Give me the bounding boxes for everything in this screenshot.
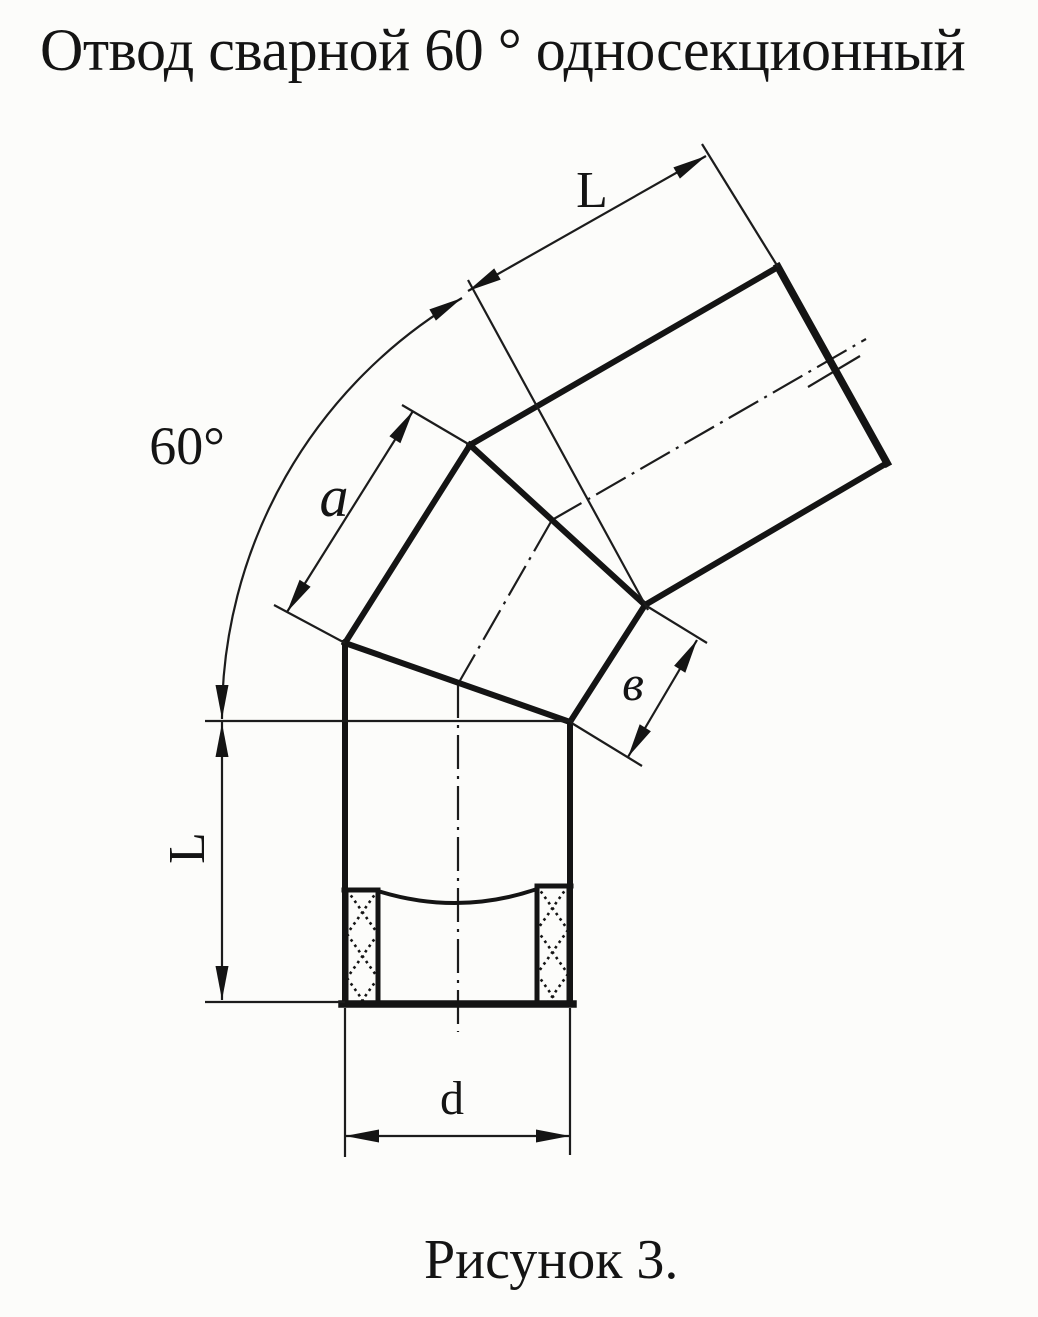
dim-gore-outer-a: a <box>274 405 470 643</box>
arrowhead-a-upper <box>389 411 413 443</box>
arrowhead-L-left-top <box>216 723 229 757</box>
label-L-top: L <box>576 162 608 219</box>
dim-diameter-d: d <box>345 1008 570 1157</box>
scanned-page: Отвод сварной 60 ° односекционный <box>0 0 1038 1317</box>
arrowhead-v-upper <box>674 640 697 673</box>
elbow-technical-drawing: L 60° L a <box>0 0 1038 1317</box>
arrowhead-d-right <box>536 1130 570 1143</box>
arrowhead-L-top-upper <box>673 156 706 179</box>
centerlines <box>458 339 866 1032</box>
arrowhead-arc-bottom <box>216 685 229 719</box>
pipe-outline <box>342 267 887 1004</box>
arrowhead-L-left-bottom <box>216 966 229 1000</box>
ext-line-v-lower <box>570 722 642 766</box>
ext-line-v-upper <box>645 605 707 643</box>
arrowhead-d-left <box>345 1130 379 1143</box>
upper-pipe-bottom-wall <box>645 463 887 605</box>
ext-line-a-lower <box>274 605 345 643</box>
label-v: в <box>622 655 644 711</box>
centerline-middle-gore <box>458 520 552 684</box>
weld-seam-upper <box>470 445 645 605</box>
wall-section-hatch-right <box>537 886 568 1004</box>
label-L-left: L <box>159 832 216 864</box>
centerline-upper-pipe <box>552 339 866 520</box>
ext-line-L-top-outer <box>702 144 778 267</box>
arrowhead-arc-top <box>429 298 462 321</box>
upper-pipe-end-face <box>778 267 887 463</box>
gore-outer-edge <box>345 445 470 643</box>
wall-section-hatch-left <box>347 890 378 1004</box>
label-a: a <box>320 464 349 529</box>
label-d: d <box>440 1072 464 1125</box>
dim-length-top: L <box>468 144 778 610</box>
arrowhead-a-lower <box>287 580 311 612</box>
upper-pipe-top-wall <box>470 267 778 445</box>
ext-line-L-top-inner <box>468 280 648 610</box>
arrowhead-v-lower <box>628 724 651 757</box>
arrowhead-L-top-lower <box>468 268 501 291</box>
figure-caption: Рисунок 3. <box>424 1230 678 1292</box>
dim-angle-60: 60° <box>149 298 462 719</box>
label-angle-60: 60° <box>149 416 225 476</box>
dim-line-a <box>287 411 413 612</box>
